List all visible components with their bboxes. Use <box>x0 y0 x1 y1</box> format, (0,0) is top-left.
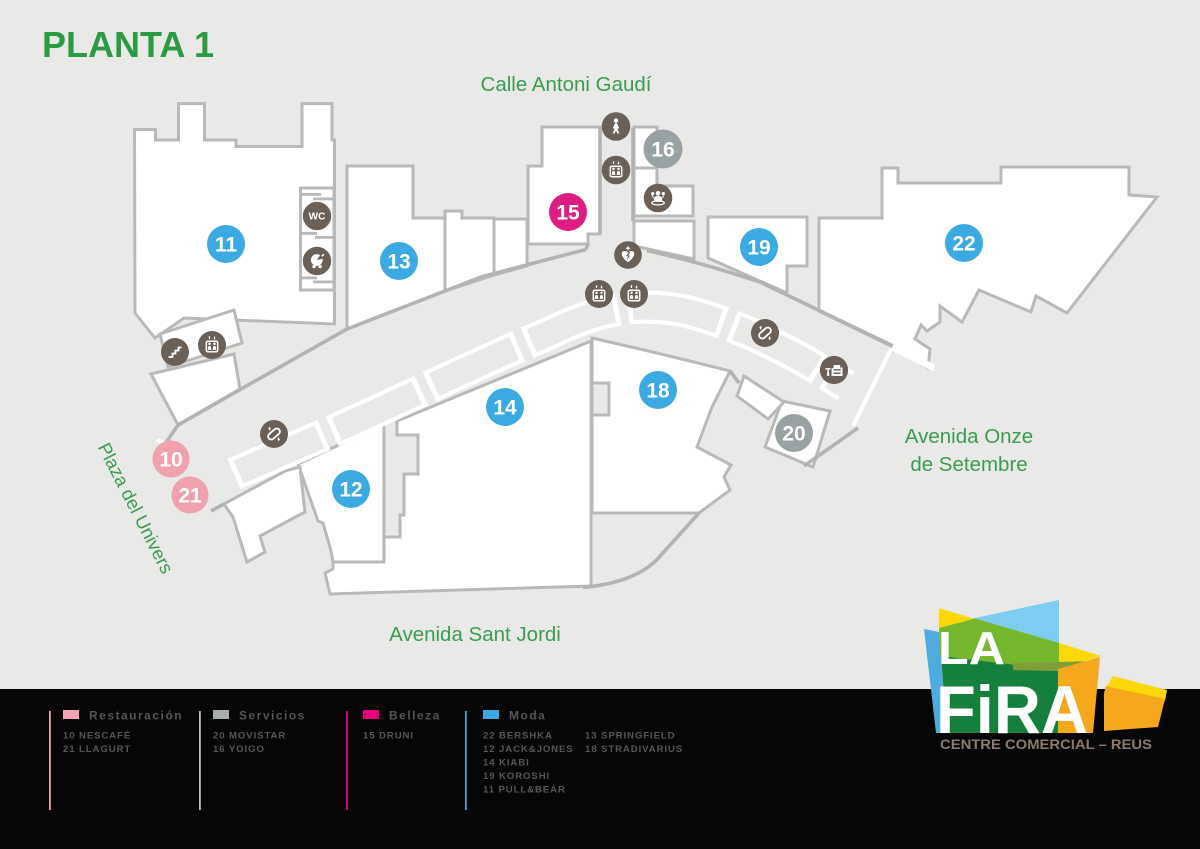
svg-text:14 KIABI: 14 KIABI <box>483 758 530 769</box>
svg-text:Avenida Onze: Avenida Onze <box>905 425 1033 448</box>
svg-text:Avenida Sant Jordi: Avenida Sant Jordi <box>389 623 561 646</box>
svg-text:13 SPRINGFIELD: 13 SPRINGFIELD <box>585 731 675 742</box>
svg-text:11: 11 <box>215 234 238 257</box>
svg-text:16: 16 <box>651 139 674 162</box>
svg-text:Calle Antoni Gaudí: Calle Antoni Gaudí <box>481 73 652 96</box>
svg-text:21 LLAGURT: 21 LLAGURT <box>63 744 131 755</box>
svg-text:19: 19 <box>747 237 770 260</box>
svg-text:20 MOVISTAR: 20 MOVISTAR <box>213 731 286 742</box>
svg-text:18: 18 <box>646 380 670 403</box>
svg-text:Restauración: Restauración <box>89 709 183 723</box>
svg-text:18 STRADIVARIUS: 18 STRADIVARIUS <box>585 744 683 755</box>
svg-text:10: 10 <box>159 449 182 472</box>
svg-text:WC: WC <box>309 212 326 223</box>
svg-text:12 JACK&JONES: 12 JACK&JONES <box>483 744 574 755</box>
svg-text:22 BERSHKA: 22 BERSHKA <box>483 731 553 742</box>
svg-text:15: 15 <box>556 202 580 225</box>
svg-text:LA: LA <box>938 622 1005 674</box>
svg-text:11 PULL&BEAR: 11 PULL&BEAR <box>483 785 566 796</box>
svg-text:19 KOROSHI: 19 KOROSHI <box>483 771 550 782</box>
svg-text:13: 13 <box>387 251 410 274</box>
svg-text:22: 22 <box>952 233 975 256</box>
svg-text:12: 12 <box>339 479 362 502</box>
svg-text:de Setembre: de Setembre <box>910 453 1027 476</box>
svg-text:PLANTA 1: PLANTA 1 <box>42 24 214 65</box>
svg-text:16 YOIGO: 16 YOIGO <box>213 744 265 755</box>
svg-text:14: 14 <box>493 397 517 420</box>
svg-text:Servicios: Servicios <box>239 709 306 723</box>
svg-text:Belleza: Belleza <box>389 709 441 723</box>
svg-text:Moda: Moda <box>509 709 546 723</box>
svg-text:CENTRE COMERCIAL – REUS: CENTRE COMERCIAL – REUS <box>940 737 1152 752</box>
svg-text:10 NESCAFÉ: 10 NESCAFÉ <box>63 730 131 742</box>
svg-text:21: 21 <box>178 485 202 508</box>
svg-text:15 DRUNI: 15 DRUNI <box>363 731 414 742</box>
svg-text:20: 20 <box>782 423 805 446</box>
